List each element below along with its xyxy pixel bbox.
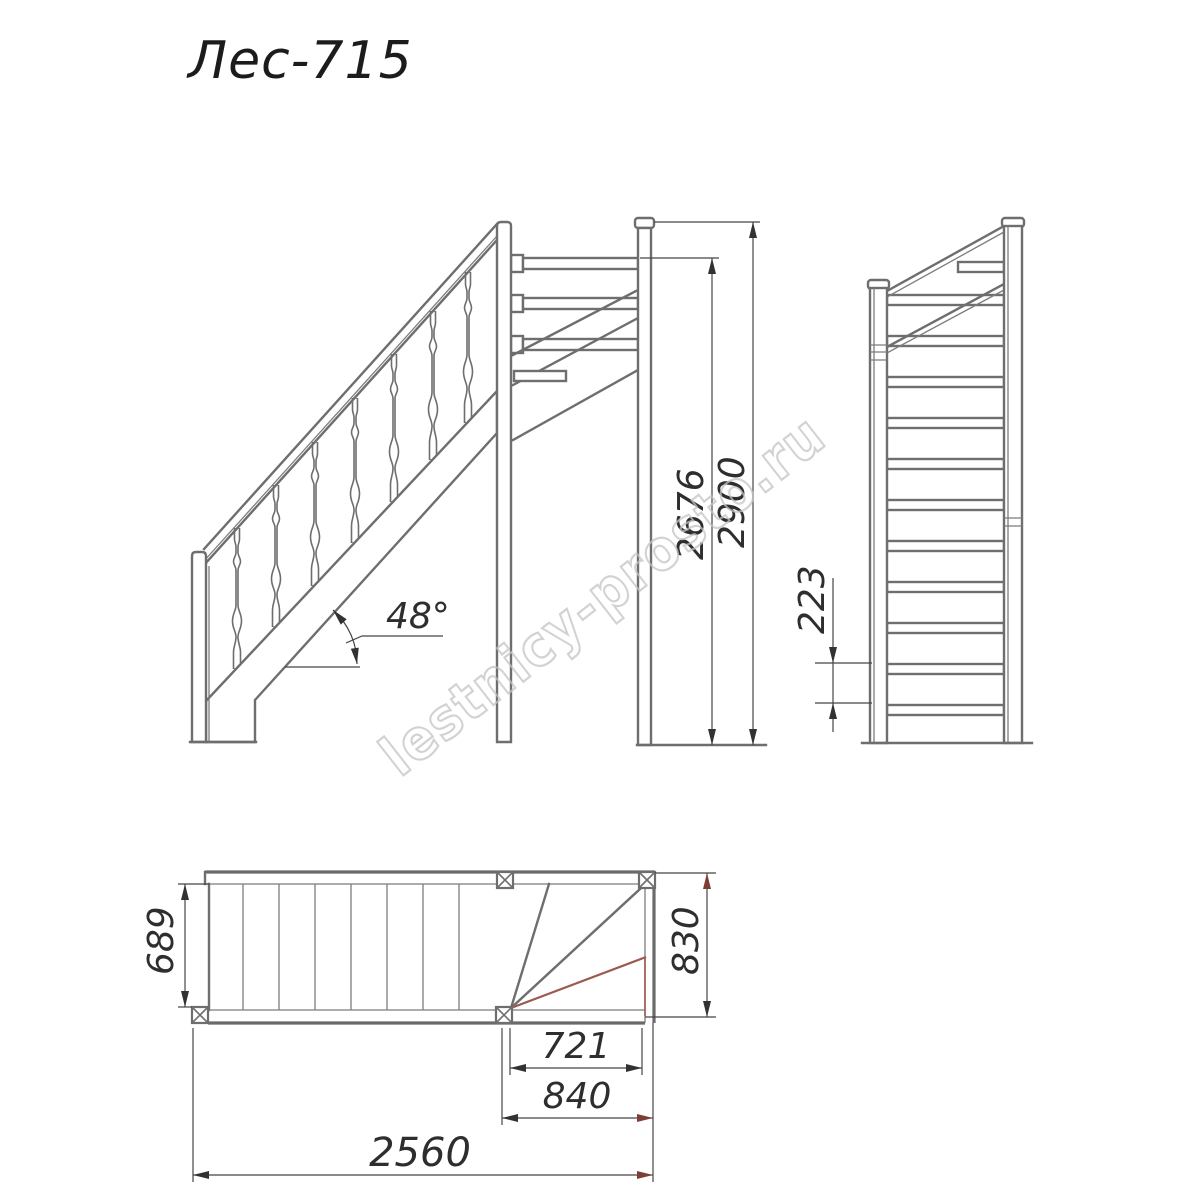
landing-rails <box>511 255 638 353</box>
dim-riser: 223 <box>792 565 872 732</box>
plan-view <box>192 872 655 1023</box>
front-right-post <box>1004 226 1022 743</box>
drawing-title: Лес-715 <box>186 31 413 91</box>
front-elevation-view <box>862 218 1032 743</box>
tread-edge <box>514 371 566 381</box>
front-left-post <box>870 288 887 743</box>
drawing-page: Лес-715 <box>0 0 1200 1200</box>
handrail <box>204 224 497 565</box>
dim-label-830: 830 <box>666 906 707 975</box>
dim-label-223: 223 <box>792 565 833 634</box>
dim-upper-width: 830 <box>645 873 716 1017</box>
dim-label-689: 689 <box>141 906 182 975</box>
plan-post-top-middle <box>497 872 513 888</box>
dim-label-2560: 2560 <box>369 1130 471 1176</box>
bottom-newel-post <box>192 552 206 742</box>
landing-post-cap <box>635 218 654 228</box>
dim-flight-width: 689 <box>141 884 209 1007</box>
plan-post-top-right <box>639 872 655 888</box>
winder-fan-lines <box>511 884 646 1008</box>
front-handrails <box>887 226 1004 353</box>
dim-label-721: 721 <box>542 1026 611 1067</box>
plan-tread-lines <box>243 884 459 1010</box>
front-treads <box>887 262 1004 715</box>
winder-stringer-lines <box>513 290 638 440</box>
landing-post <box>638 228 651 745</box>
staircase-drawing: Лес-715 <box>0 0 1200 1200</box>
dim-label-angle: 48° <box>386 596 450 637</box>
plan-post-bottom-left <box>192 1007 208 1023</box>
dim-winder-inner: 721 <box>510 1026 642 1075</box>
dim-label-840: 840 <box>543 1076 612 1117</box>
plan-post-winder <box>496 1007 512 1023</box>
